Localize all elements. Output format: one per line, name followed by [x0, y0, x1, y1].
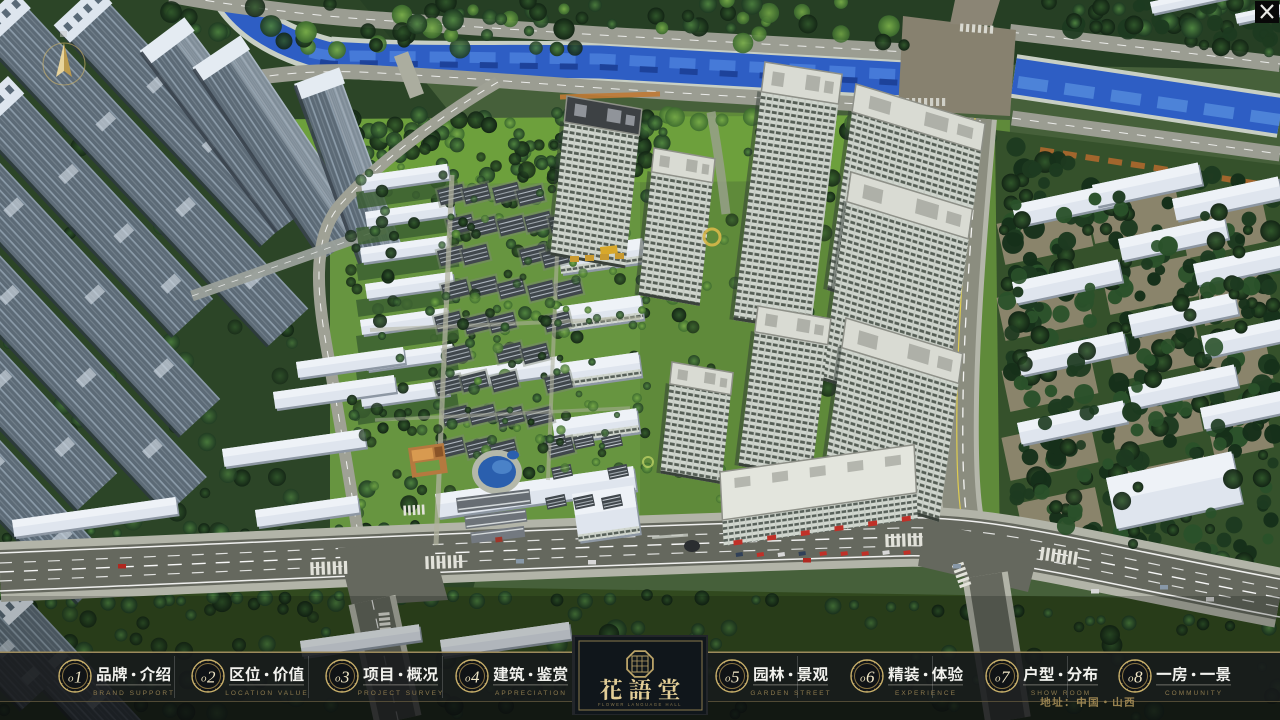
svg-text:APPRECIATION: APPRECIATION	[495, 690, 567, 697]
svg-text:EXPERIENCE: EXPERIENCE	[895, 690, 957, 697]
svg-text:2: 2	[207, 668, 216, 687]
svg-text:LOCATION VALUE: LOCATION VALUE	[225, 690, 308, 697]
svg-text:8: 8	[1134, 668, 1143, 687]
svg-text:3: 3	[340, 668, 350, 687]
svg-text:COMMUNITY: COMMUNITY	[1165, 690, 1223, 697]
svg-text:GARDEN STREET: GARDEN STREET	[750, 690, 831, 697]
svg-text:5: 5	[731, 668, 740, 687]
svg-text:PROJECT SURVEY: PROJECT SURVEY	[358, 690, 445, 697]
svg-text:FLOWER LANGUAGE HALL: FLOWER LANGUAGE HALL	[598, 702, 682, 707]
svg-text:SHOW ROOM: SHOW ROOM	[1031, 690, 1091, 697]
svg-text:BRAND SUPPORT: BRAND SUPPORT	[93, 690, 175, 697]
svg-text:6: 6	[866, 668, 875, 687]
svg-text:4: 4	[471, 668, 480, 687]
svg-text:1: 1	[74, 668, 83, 687]
